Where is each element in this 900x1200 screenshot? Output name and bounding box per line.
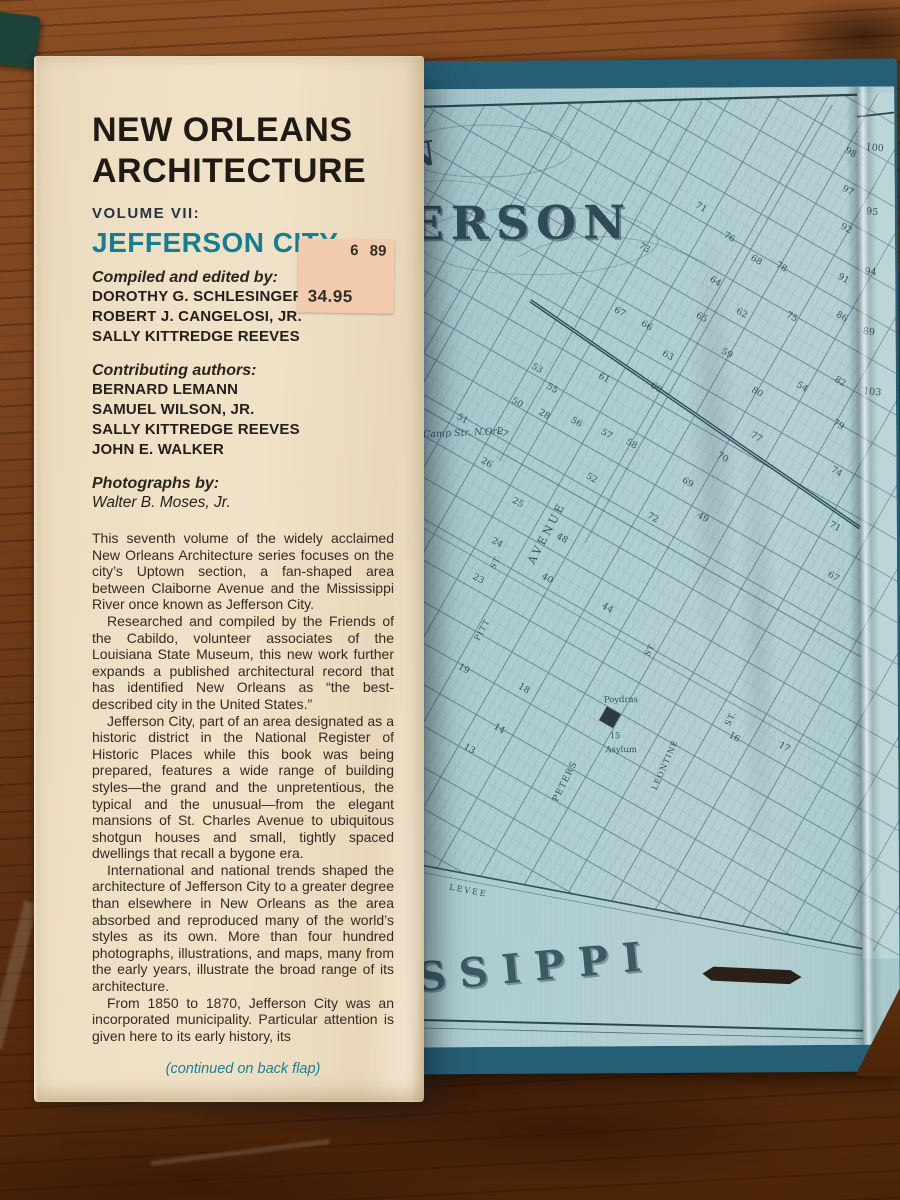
contributors-list: BERNARD LEMANNSAMUEL WILSON, JR.SALLY KI… [92, 380, 394, 460]
photographs-heading: Photographs by: [92, 475, 394, 493]
map-title-fragment-large: FERSON [397, 195, 632, 251]
contributor-name: SALLY KITTREDGE REEVES [92, 420, 394, 440]
flap-paragraph: Researched and compiled by the Friends o… [92, 613, 394, 713]
flap-description: This seventh volume of the widely acclai… [92, 530, 394, 1044]
price-sticker: 6 89 34.95 [297, 238, 394, 313]
photo-scene: AN FERSON FERSON Camp Str. N.Orl. Poydra… [0, 0, 900, 1200]
photographer-name: Walter B. Moses, Jr. [92, 493, 394, 513]
contributor-name: SAMUEL WILSON, JR. [92, 400, 394, 420]
book-title: NEW ORLEANS ARCHITECTURE [92, 110, 394, 192]
book-title-line2: ARCHITECTURE [92, 151, 394, 192]
sticker-date-code: 6 89 [350, 242, 386, 260]
fold-block-numbers-item: 89 [862, 326, 875, 338]
flap-paragraph: This seventh volume of the widely acclai… [92, 530, 394, 613]
riverboat-shape [702, 966, 801, 985]
map-endpaper: AN FERSON FERSON Camp Str. N.Orl. Poydra… [397, 86, 900, 1047]
fold-block-numbers-item: 95 [866, 206, 879, 218]
jefferson-city-map: AN FERSON FERSON Camp Str. N.Orl. Poydra… [397, 86, 900, 1047]
asylum-number: 15 [610, 731, 620, 740]
editor-name: SALLY KITTREDGE REEVES [92, 327, 394, 347]
flap-paragraph: International and national trends shaped… [92, 862, 394, 995]
book-title-line1: NEW ORLEANS [92, 110, 394, 151]
wood-scratch [0, 901, 38, 1050]
continued-note: (continued on back flap) [92, 1061, 394, 1077]
map-bottom-border [403, 1017, 863, 1034]
volume-label: VOLUME VII: [92, 205, 394, 222]
contributing-heading: Contributing authors: [92, 362, 394, 380]
dust-jacket-flap: NEW ORLEANS ARCHITECTURE VOLUME VII: JEF… [34, 56, 424, 1102]
asylum-label: Asylum [604, 745, 637, 755]
contributor-name: BERNARD LEMANN [92, 380, 394, 400]
fold-block-numbers-item: 100 [865, 142, 884, 155]
flap-paragraph: Jefferson City, part of an area designat… [92, 713, 394, 862]
map-bottom-border-inner [403, 1025, 863, 1042]
flap-paragraph: From 1850 to 1870, Jefferson City was an… [92, 995, 394, 1045]
book-cover: AN FERSON FERSON Camp Str. N.Orl. Poydra… [395, 58, 900, 1074]
fold-block-numbers-item: 94 [864, 266, 877, 278]
wood-scratch [150, 1139, 329, 1166]
street-labels-item: LEVEE [449, 883, 489, 899]
sticker-price: 34.95 [308, 286, 353, 307]
contributor-name: JOHN E. WALKER [92, 440, 394, 460]
fold-block-numbers-item: 103 [863, 386, 882, 399]
poydras-label: Poydras [604, 695, 638, 705]
